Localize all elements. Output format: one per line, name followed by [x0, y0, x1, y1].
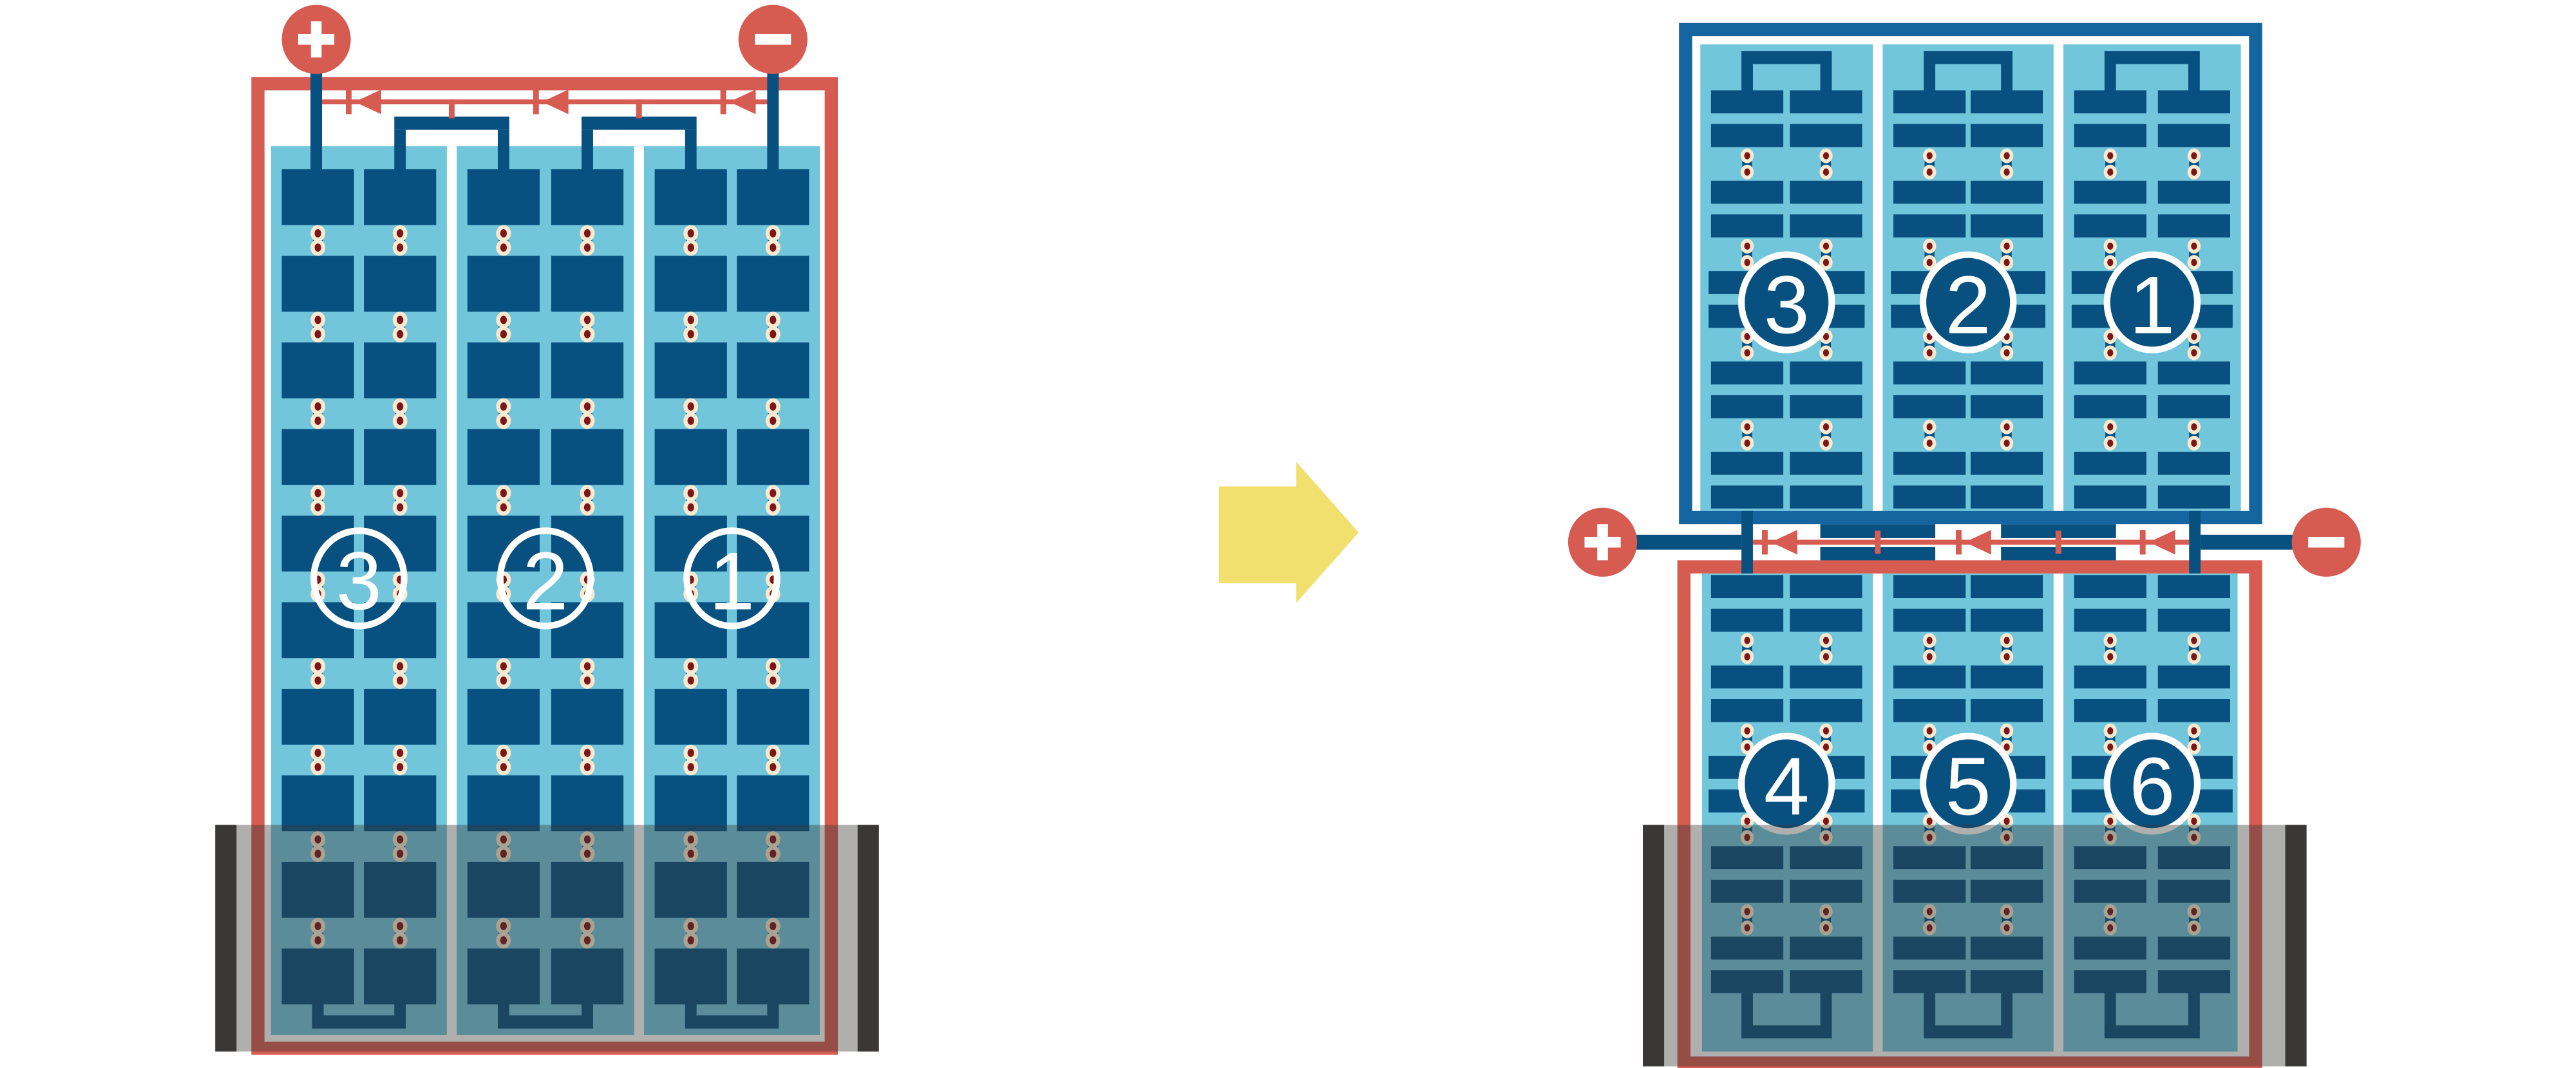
solar-half-cell: [1893, 362, 1965, 385]
solder-dot-core: [2191, 152, 2197, 159]
terminal-stem: [310, 71, 322, 183]
solar-cell: [655, 169, 727, 225]
solar-half-cell: [1971, 666, 2043, 689]
wire-stub: [2056, 530, 2061, 554]
solder-dot-core: [500, 662, 507, 671]
terminal-stem: [767, 71, 779, 183]
solder-dot-core: [397, 417, 403, 425]
plus-icon: [311, 21, 322, 57]
solar-half-cell: [1971, 214, 2043, 238]
solar-cell: [364, 429, 436, 485]
solar-half-cell: [2158, 609, 2230, 632]
solder-dot-core: [688, 749, 694, 757]
solder-dot-core: [1823, 349, 1829, 356]
solar-cell: [364, 169, 436, 225]
solar-cell: [655, 775, 727, 831]
module-number-label: 3: [1764, 260, 1810, 351]
solar-half-cell: [1971, 90, 2043, 113]
solder-dot-core: [1823, 243, 1829, 250]
solder-dot-core: [1823, 169, 1829, 176]
u-bridge: [1741, 51, 1832, 64]
solder-dot-core: [397, 229, 403, 238]
module-number-label: 1: [2129, 260, 2175, 351]
solar-half-cell: [2158, 666, 2230, 689]
solar-half-cell: [1893, 699, 1965, 722]
solder-dot-core: [2003, 637, 2009, 644]
solar-half-cell: [2074, 90, 2146, 113]
solder-dot-core: [397, 503, 403, 512]
flood-cap: [2285, 825, 2306, 1066]
solder-dot-core: [500, 243, 507, 252]
wire-stub: [449, 99, 455, 118]
flood-overlay: [1664, 825, 2285, 1066]
solder-dot-core: [584, 677, 591, 685]
u-bridge-leg: [2105, 64, 2116, 92]
solder-dot-core: [1823, 818, 1829, 825]
right-top-panel: 321: [1685, 30, 2255, 538]
solder-dot-core: [397, 677, 403, 685]
solar-half-cell: [2158, 452, 2230, 475]
solar-half-cell: [2074, 395, 2146, 418]
solar-half-cell: [1711, 699, 1783, 722]
solder-dot-core: [584, 243, 591, 252]
solar-half-cell: [2074, 485, 2146, 509]
solar-half-cell: [1711, 362, 1783, 385]
solar-half-cell: [1790, 485, 1862, 509]
solder-dot-core: [397, 316, 403, 324]
solder-dot-core: [1823, 744, 1829, 751]
u-bridge-leg: [1924, 64, 1935, 92]
solar-half-cell: [1711, 452, 1783, 475]
solder-dot-core: [584, 489, 591, 498]
solar-half-cell: [1893, 181, 1965, 204]
solar-cell: [551, 775, 623, 831]
module-number-label: 2: [522, 536, 568, 627]
solder-dot-core: [1927, 169, 1933, 176]
series-bridge-leg: [498, 130, 509, 173]
solar-half-cell: [1971, 181, 2043, 204]
solder-dot-core: [770, 316, 776, 324]
solar-cell: [282, 429, 354, 485]
solar-cell: [737, 429, 809, 485]
solar-cell: [468, 342, 540, 398]
diagram-canvas: 321 321 456: [0, 0, 2576, 1068]
solder-dot-core: [2191, 653, 2197, 660]
solder-dot-core: [397, 330, 403, 339]
solar-half-cell: [1790, 395, 1862, 418]
solder-dot-core: [2107, 259, 2113, 266]
solder-dot-core: [315, 417, 321, 425]
solar-half-cell: [1893, 575, 1965, 598]
solder-dot-core: [770, 229, 776, 238]
solder-dot-core: [1744, 423, 1750, 430]
solder-dot-core: [315, 503, 321, 512]
solder-dot-core: [500, 489, 507, 498]
series-bridge: [394, 117, 509, 129]
solar-half-cell: [2158, 395, 2230, 418]
solar-cell: [737, 256, 809, 312]
solder-dot-core: [688, 763, 694, 771]
solder-dot-core: [2191, 727, 2197, 735]
solar-half-cell: [1971, 395, 2043, 418]
solar-half-cell: [1790, 666, 1862, 689]
diagram: 321 321 456: [0, 0, 2576, 1068]
solar-half-cell: [2074, 699, 2146, 722]
series-bridge-leg: [685, 130, 697, 173]
solder-dot-core: [584, 662, 591, 671]
solder-dot-core: [1823, 440, 1829, 447]
flood-cap: [1643, 825, 1664, 1066]
solder-dot-core: [1927, 349, 1933, 356]
solar-half-cell: [2158, 362, 2230, 385]
solar-cell: [468, 256, 540, 312]
solder-dot-core: [500, 749, 507, 757]
solder-dot-core: [500, 763, 507, 771]
solder-dot-core: [2107, 423, 2113, 430]
solder-dot-core: [584, 402, 591, 411]
solar-cell: [282, 256, 354, 312]
solder-dot-core: [2107, 637, 2113, 644]
solder-dot-core: [2003, 727, 2009, 735]
solar-half-cell: [1893, 485, 1965, 509]
solder-dot-core: [584, 503, 591, 512]
solder-dot-core: [688, 229, 694, 238]
solder-dot-core: [2107, 152, 2113, 159]
solar-cell: [737, 775, 809, 831]
solar-cell: [364, 689, 436, 745]
solder-dot-core: [770, 417, 776, 425]
solar-half-cell: [1790, 181, 1862, 204]
solar-half-cell: [1711, 485, 1783, 509]
solder-dot-core: [2107, 818, 2113, 825]
flood-overlay: [236, 825, 857, 1051]
solder-dot-core: [1927, 152, 1933, 159]
solder-dot-core: [2191, 169, 2197, 176]
bypass-diode-icon: [1771, 530, 1797, 554]
solar-half-cell: [1711, 90, 1783, 113]
solder-dot-core: [584, 316, 591, 324]
solar-cell: [364, 775, 436, 831]
solder-dot-core: [584, 330, 591, 339]
solar-half-cell: [2158, 575, 2230, 598]
solder-dot-core: [1927, 423, 1933, 430]
solder-dot-core: [2107, 727, 2113, 735]
solder-dot-core: [770, 503, 776, 512]
cell-string-gap: [2054, 44, 2063, 511]
junction-connector: [1741, 511, 1753, 574]
module-number-label: 1: [709, 536, 755, 627]
solder-dot-core: [315, 330, 321, 339]
solder-dot-core: [500, 402, 507, 411]
solar-cell: [551, 169, 623, 225]
solar-half-cell: [1790, 609, 1862, 632]
solar-half-cell: [2158, 214, 2230, 238]
solder-dot-core: [1744, 727, 1750, 735]
solder-dot-core: [688, 402, 694, 411]
solar-half-cell: [1893, 452, 1965, 475]
solar-half-cell: [1711, 395, 1783, 418]
solder-dot-core: [1744, 744, 1750, 751]
solar-half-cell: [2074, 666, 2146, 689]
solar-half-cell: [1971, 699, 2043, 722]
solder-dot-core: [315, 677, 321, 685]
solder-dot-core: [2107, 440, 2113, 447]
solder-dot-core: [2191, 818, 2197, 825]
solar-half-cell: [1790, 452, 1862, 475]
transform-arrow: [1219, 462, 1359, 603]
solar-half-cell: [2158, 90, 2230, 113]
solder-dot-core: [2191, 423, 2197, 430]
solar-half-cell: [1971, 452, 2043, 475]
solar-half-cell: [1790, 699, 1862, 722]
solder-dot-core: [1823, 152, 1829, 159]
solar-half-cell: [1893, 90, 1965, 113]
solar-half-cell: [2074, 362, 2146, 385]
solder-dot-core: [397, 489, 403, 498]
solar-half-cell: [1893, 395, 1965, 418]
solder-dot-core: [770, 763, 776, 771]
solar-cell: [551, 429, 623, 485]
solder-dot-core: [688, 503, 694, 512]
solder-dot-core: [2003, 349, 2009, 356]
solder-dot-core: [1927, 440, 1933, 447]
solar-half-cell: [1893, 666, 1965, 689]
solar-cell: [282, 689, 354, 745]
solder-dot-core: [770, 662, 776, 671]
solder-dot-core: [315, 662, 321, 671]
solder-dot-core: [315, 749, 321, 757]
series-bridge: [582, 117, 697, 129]
solder-dot-core: [500, 316, 507, 324]
solar-half-cell: [1790, 214, 1862, 238]
solder-dot-core: [2107, 653, 2113, 660]
u-bridge-leg: [1741, 64, 1753, 92]
solar-half-cell: [2074, 124, 2146, 147]
solder-dot-core: [1927, 243, 1933, 250]
flood-cap: [858, 825, 879, 1051]
solder-dot-core: [1823, 259, 1829, 266]
solar-half-cell: [1711, 124, 1783, 147]
solder-dot-core: [315, 402, 321, 411]
solder-dot-core: [397, 662, 403, 671]
solder-dot-core: [1927, 653, 1933, 660]
solar-cell: [737, 689, 809, 745]
solder-dot-core: [1744, 169, 1750, 176]
solar-cell: [551, 342, 623, 398]
solder-dot-core: [1744, 637, 1750, 644]
solar-cell: [364, 342, 436, 398]
solder-dot-core: [770, 489, 776, 498]
solar-cell: [551, 256, 623, 312]
solar-half-cell: [2074, 575, 2146, 598]
solar-half-cell: [1790, 362, 1862, 385]
solder-dot-core: [1927, 818, 1933, 825]
solder-dot-core: [2003, 744, 2009, 751]
solar-half-cell: [1893, 124, 1965, 147]
solder-dot-core: [500, 417, 507, 425]
module-number-label: 6: [2129, 742, 2175, 833]
solder-dot-core: [2003, 243, 2009, 250]
solar-half-cell: [1971, 124, 2043, 147]
bypass-diode-bar: [346, 89, 352, 114]
solder-dot-core: [688, 677, 694, 685]
solar-half-cell: [1971, 575, 2043, 598]
series-bridge-leg: [394, 130, 406, 173]
solder-dot-core: [1823, 653, 1829, 660]
solar-half-cell: [2158, 699, 2230, 722]
solar-cell: [282, 342, 354, 398]
minus-icon: [2308, 537, 2344, 548]
solder-dot-core: [688, 417, 694, 425]
solder-dot-core: [397, 402, 403, 411]
solder-dot-core: [770, 677, 776, 685]
wire-stub: [1875, 530, 1880, 554]
solar-half-cell: [1711, 181, 1783, 204]
solar-cell: [364, 256, 436, 312]
solder-dot-core: [1823, 727, 1829, 735]
terminal-stem: [1636, 535, 1741, 550]
u-bridge: [1924, 51, 2012, 64]
solder-dot-core: [2191, 259, 2197, 266]
solar-half-cell: [2074, 609, 2146, 632]
solder-dot-core: [1927, 744, 1933, 751]
solder-dot-core: [1744, 152, 1750, 159]
solder-dot-core: [1744, 259, 1750, 266]
solder-dot-core: [688, 330, 694, 339]
solder-dot-core: [2003, 818, 2009, 825]
solder-dot-core: [770, 243, 776, 252]
bypass-diode-bar: [1956, 530, 1962, 554]
solar-half-cell: [1711, 575, 1783, 598]
solder-dot-core: [2107, 744, 2113, 751]
solar-half-cell: [1711, 609, 1783, 632]
solder-dot-core: [2003, 423, 2009, 430]
module-number-label: 3: [336, 536, 382, 627]
solar-cell: [737, 342, 809, 398]
solder-dot-core: [770, 330, 776, 339]
bypass-diode-bar: [1762, 530, 1768, 554]
solder-dot-core: [500, 503, 507, 512]
solder-dot-core: [1744, 349, 1750, 356]
terminal-stem: [2201, 535, 2293, 550]
junction-connector: [2189, 511, 2201, 574]
solar-half-cell: [1971, 609, 2043, 632]
solar-half-cell: [2158, 124, 2230, 147]
solder-dot-core: [2191, 243, 2197, 250]
minus-icon: [755, 34, 791, 45]
solar-half-cell: [1790, 90, 1862, 113]
solder-dot-core: [1744, 818, 1750, 825]
bypass-diode-icon: [542, 89, 569, 114]
solar-half-cell: [1893, 214, 1965, 238]
solar-cell: [468, 169, 540, 225]
cell-string-gap: [1873, 44, 1882, 511]
module-number-label: 2: [1946, 260, 1991, 351]
solder-dot-core: [500, 330, 507, 339]
solder-dot-core: [2107, 169, 2113, 176]
solder-dot-core: [688, 243, 694, 252]
solder-dot-core: [1744, 653, 1750, 660]
bypass-diode-icon: [1965, 530, 1991, 554]
solder-dot-core: [2191, 744, 2197, 751]
flood-cap: [215, 825, 236, 1051]
solder-dot-core: [584, 749, 591, 757]
solar-cell: [468, 689, 540, 745]
solar-cell: [655, 256, 727, 312]
solder-dot-core: [397, 243, 403, 252]
solar-half-cell: [1790, 575, 1862, 598]
solar-half-cell: [2074, 452, 2146, 475]
solar-half-cell: [1790, 124, 1862, 147]
solar-cell: [655, 689, 727, 745]
solder-dot-core: [770, 402, 776, 411]
solder-dot-core: [2191, 349, 2197, 356]
solder-dot-core: [315, 316, 321, 324]
module-number-label: 4: [1764, 742, 1810, 833]
solder-dot-core: [688, 662, 694, 671]
solder-dot-core: [2003, 169, 2009, 176]
solder-dot-core: [1744, 440, 1750, 447]
solder-dot-core: [770, 749, 776, 757]
solar-cell: [655, 429, 727, 485]
solar-half-cell: [2158, 181, 2230, 204]
solder-dot-core: [1744, 243, 1750, 250]
solder-dot-core: [2107, 349, 2113, 356]
solder-dot-core: [688, 489, 694, 498]
solder-dot-core: [2191, 333, 2197, 340]
solder-dot-core: [397, 763, 403, 771]
u-bridge-leg: [2188, 64, 2200, 92]
solder-dot-core: [584, 417, 591, 425]
bypass-diode-bar: [721, 89, 726, 114]
wire-stub: [636, 99, 642, 118]
solder-dot-core: [397, 749, 403, 757]
u-bridge-leg: [2001, 64, 2012, 92]
solder-dot-core: [1927, 637, 1933, 644]
series-bridge-leg: [582, 130, 593, 173]
solder-dot-core: [1823, 637, 1829, 644]
solder-dot-core: [2107, 243, 2113, 250]
solder-dot-core: [315, 489, 321, 498]
solar-half-cell: [2074, 214, 2146, 238]
solar-half-cell: [1711, 214, 1783, 238]
bypass-diode-bar: [2140, 530, 2146, 554]
solder-dot-core: [584, 229, 591, 238]
solar-half-cell: [1893, 609, 1965, 632]
solar-cell: [468, 429, 540, 485]
solder-dot-core: [2191, 440, 2197, 447]
solar-half-cell: [2074, 181, 2146, 204]
solder-dot-core: [1823, 423, 1829, 430]
solar-half-cell: [1971, 362, 2043, 385]
solder-dot-core: [1927, 259, 1933, 266]
solder-dot-core: [500, 229, 507, 238]
u-bridge: [2105, 51, 2200, 64]
solder-dot-core: [1927, 727, 1933, 735]
solder-dot-core: [2003, 653, 2009, 660]
solar-cell: [551, 689, 623, 745]
solder-dot-core: [688, 316, 694, 324]
flood-shading: [215, 825, 2306, 1066]
solder-dot-core: [584, 763, 591, 771]
solder-dot-core: [315, 229, 321, 238]
solder-dot-core: [2003, 440, 2009, 447]
solder-dot-core: [2107, 333, 2113, 340]
solder-dot-core: [315, 243, 321, 252]
u-bridge-leg: [1821, 64, 1832, 92]
solder-dot-core: [2003, 259, 2009, 266]
solar-cell: [468, 775, 540, 831]
